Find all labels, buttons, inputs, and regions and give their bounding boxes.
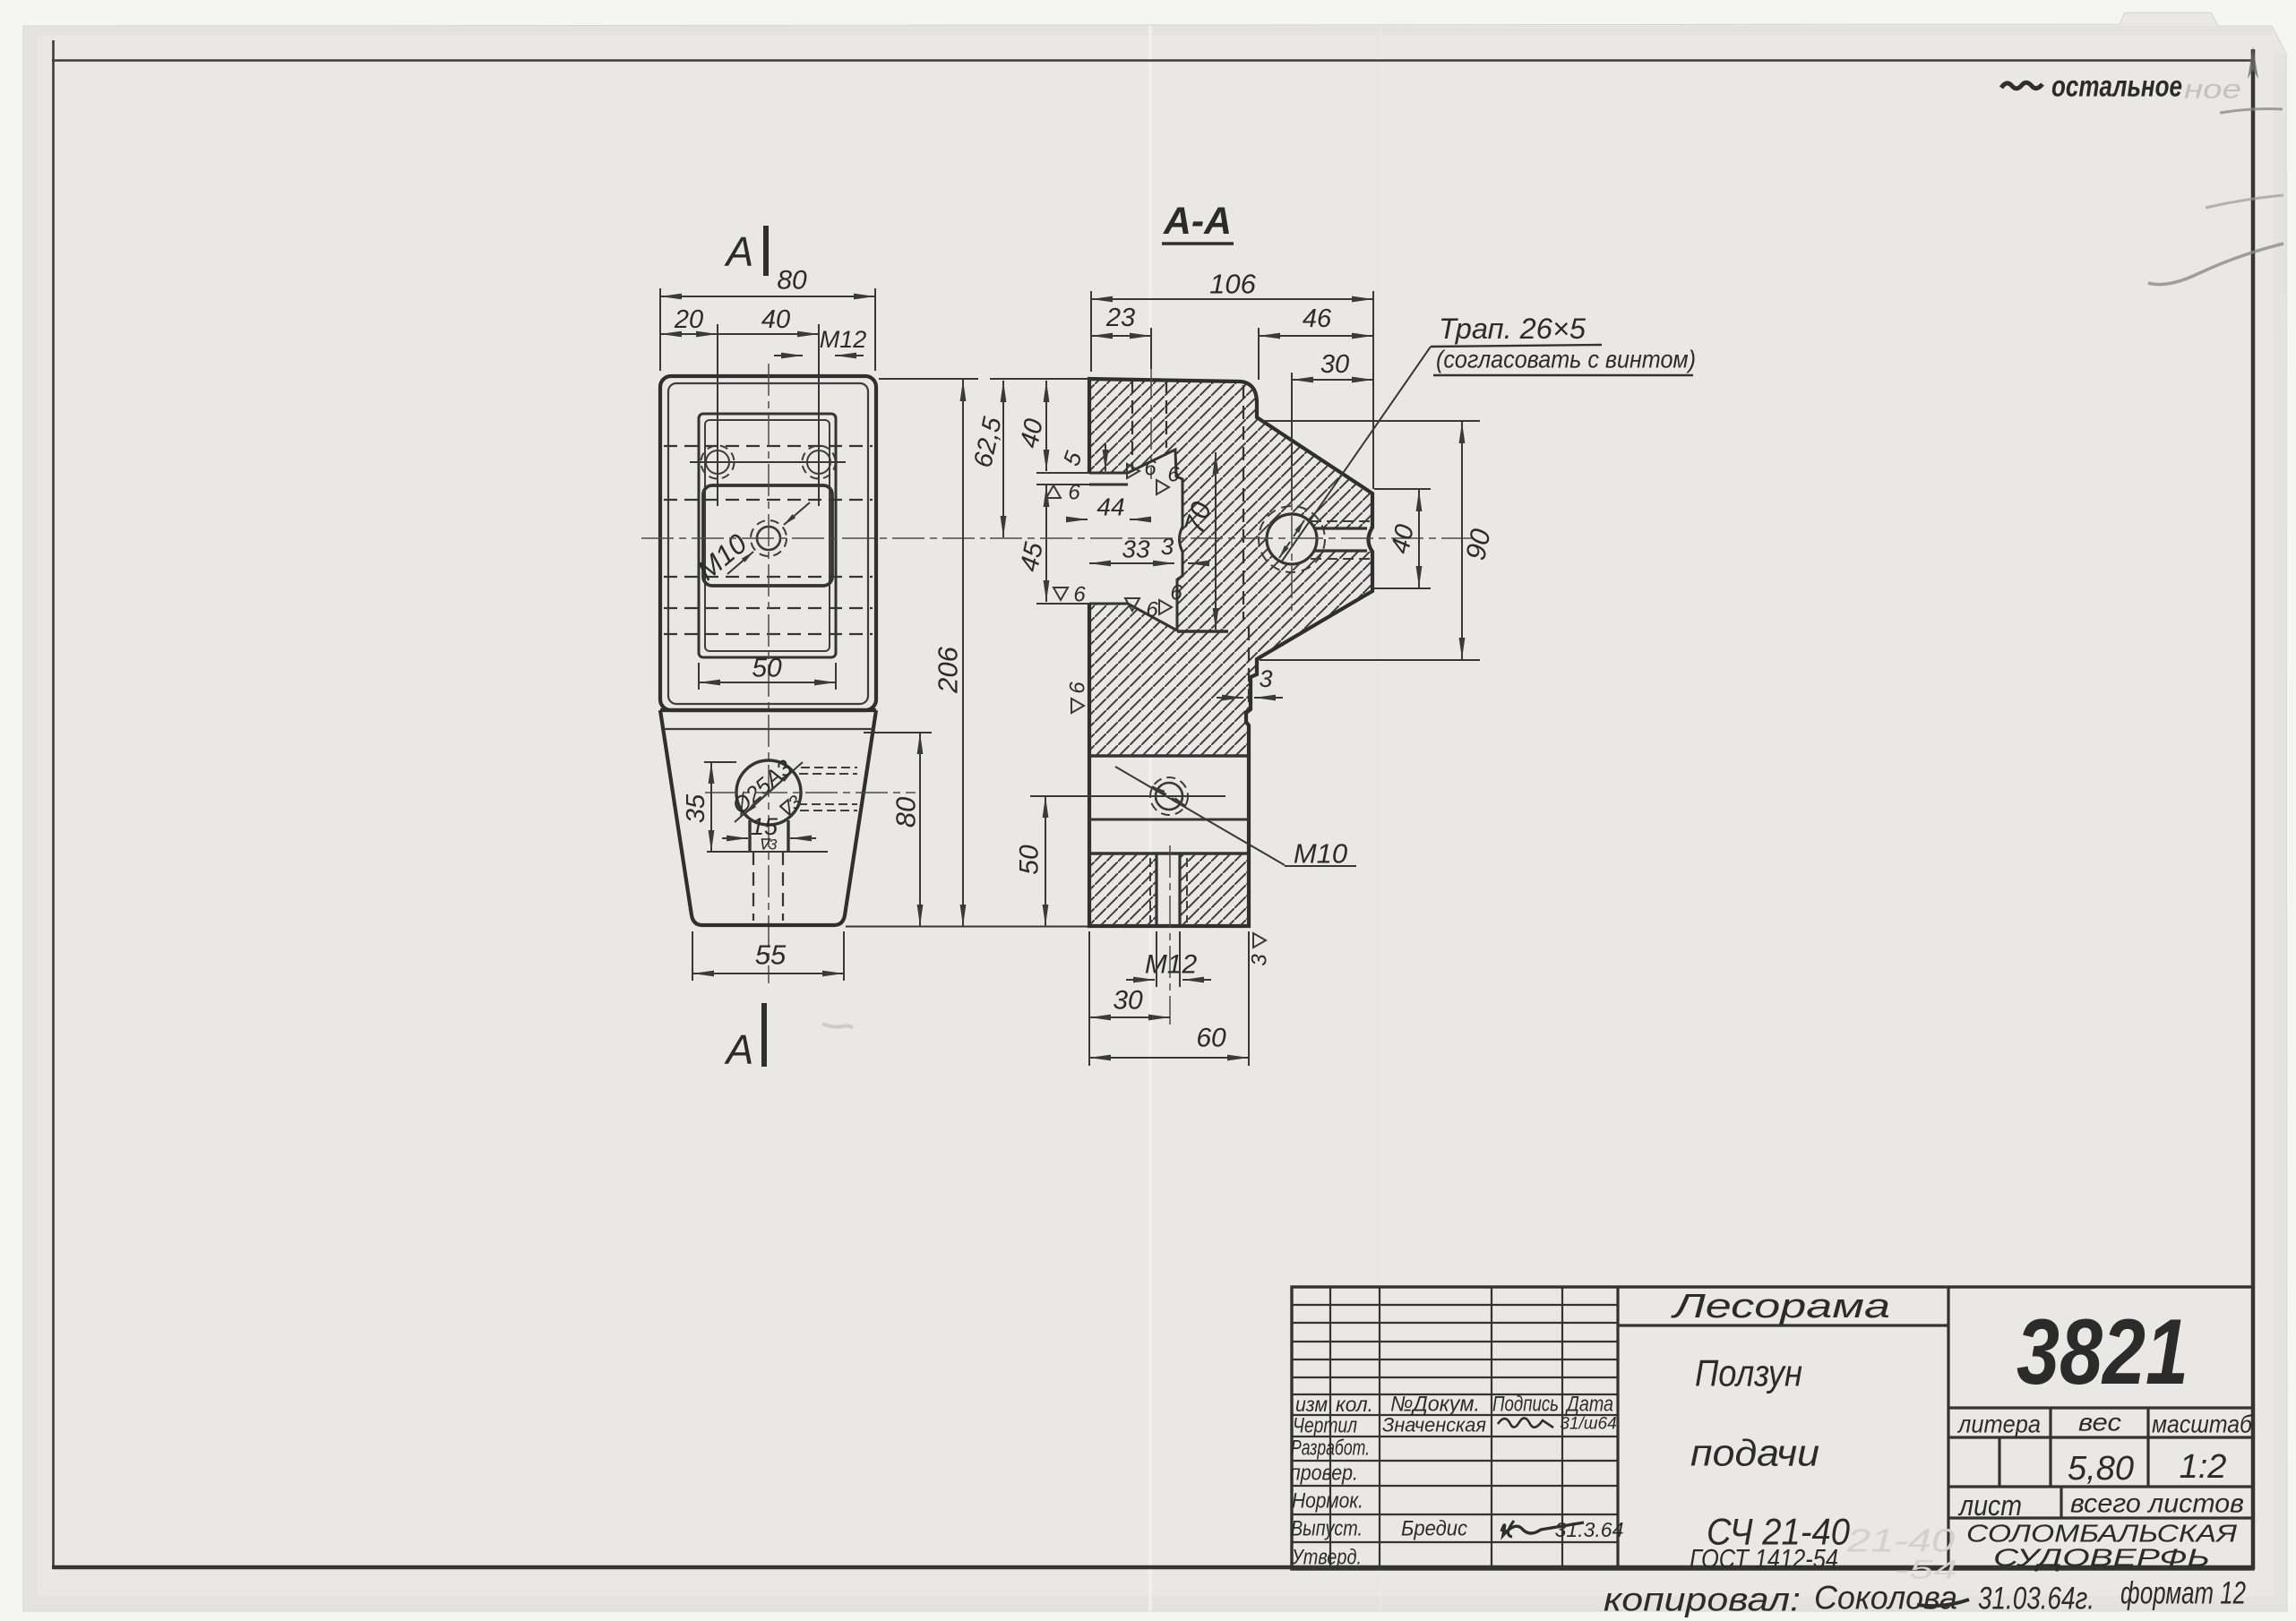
svg-text:31.3.64: 31.3.64 bbox=[1555, 1518, 1624, 1541]
svg-text:206: 206 bbox=[933, 646, 964, 693]
svg-text:40: 40 bbox=[1386, 522, 1420, 556]
svg-text:3: 3 bbox=[1248, 954, 1272, 966]
svg-text:кол.: кол. bbox=[1336, 1393, 1373, 1416]
svg-text:50: 50 bbox=[752, 654, 782, 683]
svg-text:50: 50 bbox=[1015, 845, 1045, 875]
svg-text:ное: ное bbox=[2184, 75, 2241, 105]
svg-text:A: A bbox=[724, 228, 754, 275]
svg-text:Бредис: Бредис bbox=[1401, 1517, 1467, 1541]
svg-text:формат 12: формат 12 bbox=[2120, 1576, 2246, 1611]
svg-text:3821: 3821 bbox=[2017, 1300, 2189, 1404]
svg-text:ГОСТ 1412-54: ГОСТ 1412-54 bbox=[1690, 1545, 1838, 1574]
svg-text:35: 35 bbox=[682, 793, 710, 823]
svg-text:21-40: 21-40 bbox=[1846, 1522, 1955, 1559]
svg-text:6: 6 bbox=[1170, 581, 1182, 605]
svg-text:Подпись: Подпись bbox=[1492, 1393, 1559, 1417]
svg-text:A-A: A-A bbox=[1163, 200, 1232, 243]
svg-text:масштаб: масштаб bbox=[2152, 1411, 2253, 1438]
svg-text:провер.: провер. bbox=[1290, 1462, 1358, 1486]
svg-text:60: 60 bbox=[1196, 1024, 1226, 1053]
svg-text:6: 6 bbox=[1146, 598, 1158, 622]
svg-text:M12: M12 bbox=[820, 326, 867, 353]
svg-text:литера: литера bbox=[1956, 1411, 2041, 1438]
svg-text:23: 23 bbox=[1105, 304, 1135, 332]
svg-text:Разработ.: Разработ. bbox=[1291, 1437, 1370, 1461]
svg-text:копировал:: копировал: bbox=[1604, 1582, 1801, 1618]
svg-text:Чертил: Чертил bbox=[1293, 1414, 1357, 1438]
svg-text:изм: изм bbox=[1295, 1393, 1328, 1416]
svg-text:остальное: остальное bbox=[2051, 70, 2182, 103]
svg-text:всего листов: всего листов bbox=[2070, 1489, 2244, 1519]
svg-text:Ползун: Ползун bbox=[1695, 1352, 1802, 1394]
svg-text:20: 20 bbox=[674, 305, 703, 334]
svg-text:6: 6 bbox=[1073, 583, 1086, 607]
svg-text:40: 40 bbox=[761, 305, 790, 334]
svg-text:1:2: 1:2 bbox=[2180, 1448, 2227, 1486]
svg-text:Соколова: Соколова bbox=[1814, 1580, 1957, 1617]
svg-text:5,80: 5,80 bbox=[2068, 1450, 2134, 1488]
svg-text:Лесорама: Лесорама bbox=[1670, 1288, 1890, 1325]
svg-text:31.03.64г.: 31.03.64г. bbox=[1978, 1582, 2094, 1617]
svg-text:80: 80 bbox=[777, 266, 807, 296]
svg-text:Утверд.: Утверд. bbox=[1291, 1546, 1362, 1570]
svg-text:Нормок.: Нормок. bbox=[1292, 1489, 1363, 1514]
svg-text:№Докум.: №Докум. bbox=[1390, 1393, 1480, 1417]
svg-text:∇3: ∇3 bbox=[759, 836, 778, 853]
svg-text:3: 3 bbox=[1259, 665, 1272, 692]
svg-text:46: 46 bbox=[1303, 304, 1332, 333]
svg-text:31/ш64: 31/ш64 bbox=[1560, 1415, 1616, 1434]
svg-text:90: 90 bbox=[1459, 526, 1496, 562]
svg-text:A: A bbox=[724, 1026, 754, 1073]
svg-text:СУДОВЕРФЬ: СУДОВЕРФЬ bbox=[1993, 1544, 2210, 1572]
svg-text:30: 30 bbox=[1113, 986, 1143, 1016]
svg-text:3: 3 bbox=[1161, 533, 1174, 560]
svg-text:M10: M10 bbox=[1294, 838, 1347, 870]
svg-text:Выпуст.: Выпуст. bbox=[1291, 1517, 1363, 1541]
svg-text:40: 40 bbox=[1015, 416, 1049, 450]
svg-text:6: 6 bbox=[1144, 457, 1157, 481]
svg-text:(согласовать с винтом): (согласовать с винтом) bbox=[1436, 346, 1696, 373]
svg-text:6: 6 bbox=[1066, 682, 1090, 694]
svg-text:33: 33 bbox=[1122, 536, 1150, 563]
svg-text:44: 44 bbox=[1096, 493, 1124, 521]
svg-text:106: 106 bbox=[1209, 269, 1256, 300]
svg-text:6: 6 bbox=[1068, 481, 1080, 505]
svg-text:подачи: подачи bbox=[1690, 1432, 1819, 1474]
svg-text:вес: вес bbox=[2078, 1409, 2121, 1437]
svg-text:55: 55 bbox=[755, 939, 787, 971]
svg-text:лист: лист bbox=[1957, 1489, 2022, 1522]
svg-text:Дата: Дата bbox=[1565, 1393, 1613, 1417]
svg-text:Трап. 26×5: Трап. 26×5 bbox=[1439, 313, 1586, 345]
svg-text:6: 6 bbox=[1167, 463, 1180, 487]
svg-text:80: 80 bbox=[890, 797, 922, 828]
svg-text:M12: M12 bbox=[1145, 950, 1198, 980]
svg-text:30: 30 bbox=[1320, 350, 1349, 379]
svg-text:Значенская: Значенская bbox=[1382, 1414, 1486, 1437]
